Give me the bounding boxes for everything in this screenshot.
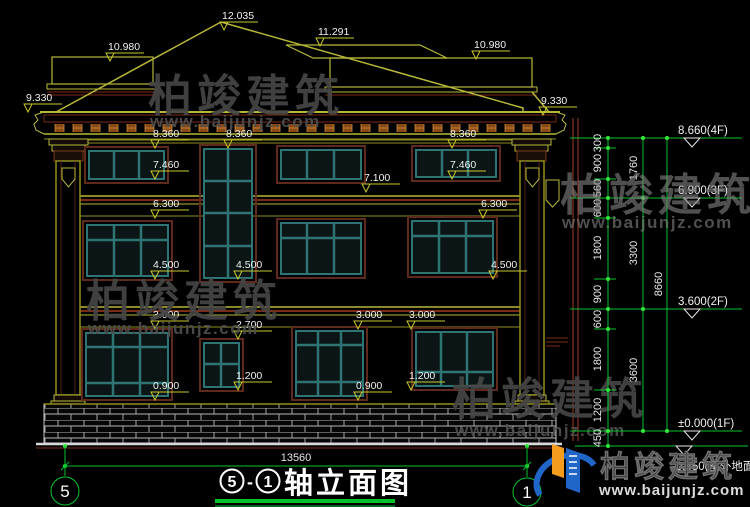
ground-line bbox=[36, 444, 562, 448]
title-text: 轴立面图 bbox=[284, 466, 412, 500]
cornice-end-left bbox=[34, 112, 44, 134]
logo-url-text: www.baijunjz.com bbox=[598, 482, 744, 499]
dim-label: 300 bbox=[592, 134, 604, 152]
marker-label: 10.980 bbox=[474, 39, 506, 51]
dim-label: 900 bbox=[592, 285, 604, 303]
window-stair-lower bbox=[200, 339, 243, 391]
dim-total-label: 8660 bbox=[653, 272, 665, 296]
marker-label: 6.300 bbox=[153, 198, 179, 210]
dim-label: 450 bbox=[592, 429, 604, 447]
elevation-marker: 0.900 bbox=[151, 380, 189, 400]
window-3f-mid bbox=[277, 219, 365, 278]
axis-number: 5 bbox=[60, 482, 69, 501]
marker-label: 0.900 bbox=[356, 380, 382, 392]
axis-number: 1 bbox=[522, 483, 531, 502]
dim-label: 1800 bbox=[592, 236, 604, 260]
level-label: ±0.000(1F) bbox=[678, 418, 734, 430]
elevation-drawing: 12.035 10.980 11.291 10.980 9.330 9.330 … bbox=[0, 0, 750, 507]
elevation-marker: 11.291 bbox=[316, 26, 354, 46]
dim-label: 1200 bbox=[592, 398, 604, 422]
watermark-right: 柏竣建筑 www.baijunjz.com bbox=[560, 171, 750, 232]
marker-label: 10.980 bbox=[108, 41, 140, 53]
elevation-marker: 10.980 bbox=[472, 39, 510, 59]
windows bbox=[82, 145, 500, 400]
elevation-marker: 7.460 bbox=[151, 159, 189, 179]
marker-label: 9.330 bbox=[26, 92, 52, 104]
dim-label: 3300 bbox=[628, 241, 640, 265]
title-underline bbox=[215, 499, 395, 503]
shield-ornament bbox=[62, 168, 75, 187]
logo-building-orange bbox=[552, 444, 564, 478]
marker-label: 0.900 bbox=[153, 380, 179, 392]
logo-swoosh bbox=[537, 455, 594, 495]
dim-label: 600 bbox=[592, 310, 604, 328]
marker-label: 4.500 bbox=[491, 259, 517, 271]
marker-label: 6.300 bbox=[481, 198, 507, 210]
marker-label: 9.330 bbox=[541, 95, 567, 107]
cornice-end-right bbox=[556, 112, 566, 134]
watermark-url: www.baijunjz.com bbox=[561, 213, 733, 232]
overall-width-label: 13560 bbox=[281, 452, 312, 464]
elevation-marker: 0.900 bbox=[354, 380, 392, 400]
floor-band-3f bbox=[80, 196, 520, 216]
title-axis-right: 1 bbox=[264, 474, 273, 491]
elevation-marker: 4.500 bbox=[489, 259, 527, 279]
dim-label: 3600 bbox=[628, 358, 640, 382]
logo-building-blue bbox=[566, 448, 580, 493]
title-axis-left: 5 bbox=[228, 474, 237, 491]
roof-right-section bbox=[325, 58, 549, 112]
dim-label: 900 bbox=[592, 154, 604, 172]
level-flag-2f: 3.600(2F) bbox=[668, 296, 742, 318]
wall-bracket bbox=[546, 338, 568, 346]
marker-label: 12.035 bbox=[222, 10, 254, 22]
marker-label: 7.460 bbox=[450, 159, 476, 171]
marker-label: 1.200 bbox=[236, 370, 262, 382]
corbel-ornament bbox=[546, 180, 559, 207]
level-flag-1f: ±0.000(1F) bbox=[668, 418, 742, 440]
brand-logo: 柏竣建筑 www.baijunjz.com bbox=[537, 444, 745, 499]
level-label: 3.600(2F) bbox=[678, 296, 728, 308]
marker-label: 7.460 bbox=[153, 159, 179, 171]
marker-label: 4.500 bbox=[153, 259, 179, 271]
axis-bubble-left: 5 bbox=[51, 477, 79, 505]
drawing-title: 5 - 1 轴立面图 bbox=[215, 466, 412, 506]
cad-canvas: 12.035 10.980 11.291 10.980 9.330 9.330 … bbox=[0, 0, 750, 507]
elevation-marker: 7.100 bbox=[362, 172, 400, 192]
logo-brand-text: 柏竣建筑 bbox=[600, 450, 736, 484]
watermark-brand: 柏竣建筑 bbox=[452, 375, 648, 424]
marker-label: 7.100 bbox=[364, 172, 390, 184]
pilaster-shaft bbox=[56, 161, 80, 395]
shield-ornament bbox=[526, 168, 539, 187]
level-flag-4f: 8.660(4F) bbox=[668, 125, 742, 147]
elevation-marker: 1.200 bbox=[234, 370, 272, 390]
elevation-marker: 10.980 bbox=[106, 41, 144, 61]
title-separator: - bbox=[247, 472, 253, 492]
pilaster-shaft bbox=[520, 161, 544, 395]
marker-label: 3.000 bbox=[409, 309, 435, 321]
elevation-marker: 4.500 bbox=[151, 259, 189, 279]
marker-label: 8.360 bbox=[450, 128, 476, 140]
marker-label: 3.000 bbox=[356, 309, 382, 321]
window-3f-right bbox=[408, 217, 497, 277]
watermark-url: www.baijunjz.com bbox=[149, 112, 321, 131]
marker-label: 11.291 bbox=[318, 26, 349, 38]
marker-label: 4.500 bbox=[236, 259, 262, 271]
window-4f-mid bbox=[277, 146, 365, 183]
roof-left-wing bbox=[47, 57, 158, 95]
level-label: 8.660(4F) bbox=[678, 125, 728, 137]
dim-label: 1800 bbox=[592, 347, 604, 371]
watermark-url: www.baijunjz.com bbox=[87, 319, 259, 338]
marker-label: 1.200 bbox=[409, 370, 435, 382]
